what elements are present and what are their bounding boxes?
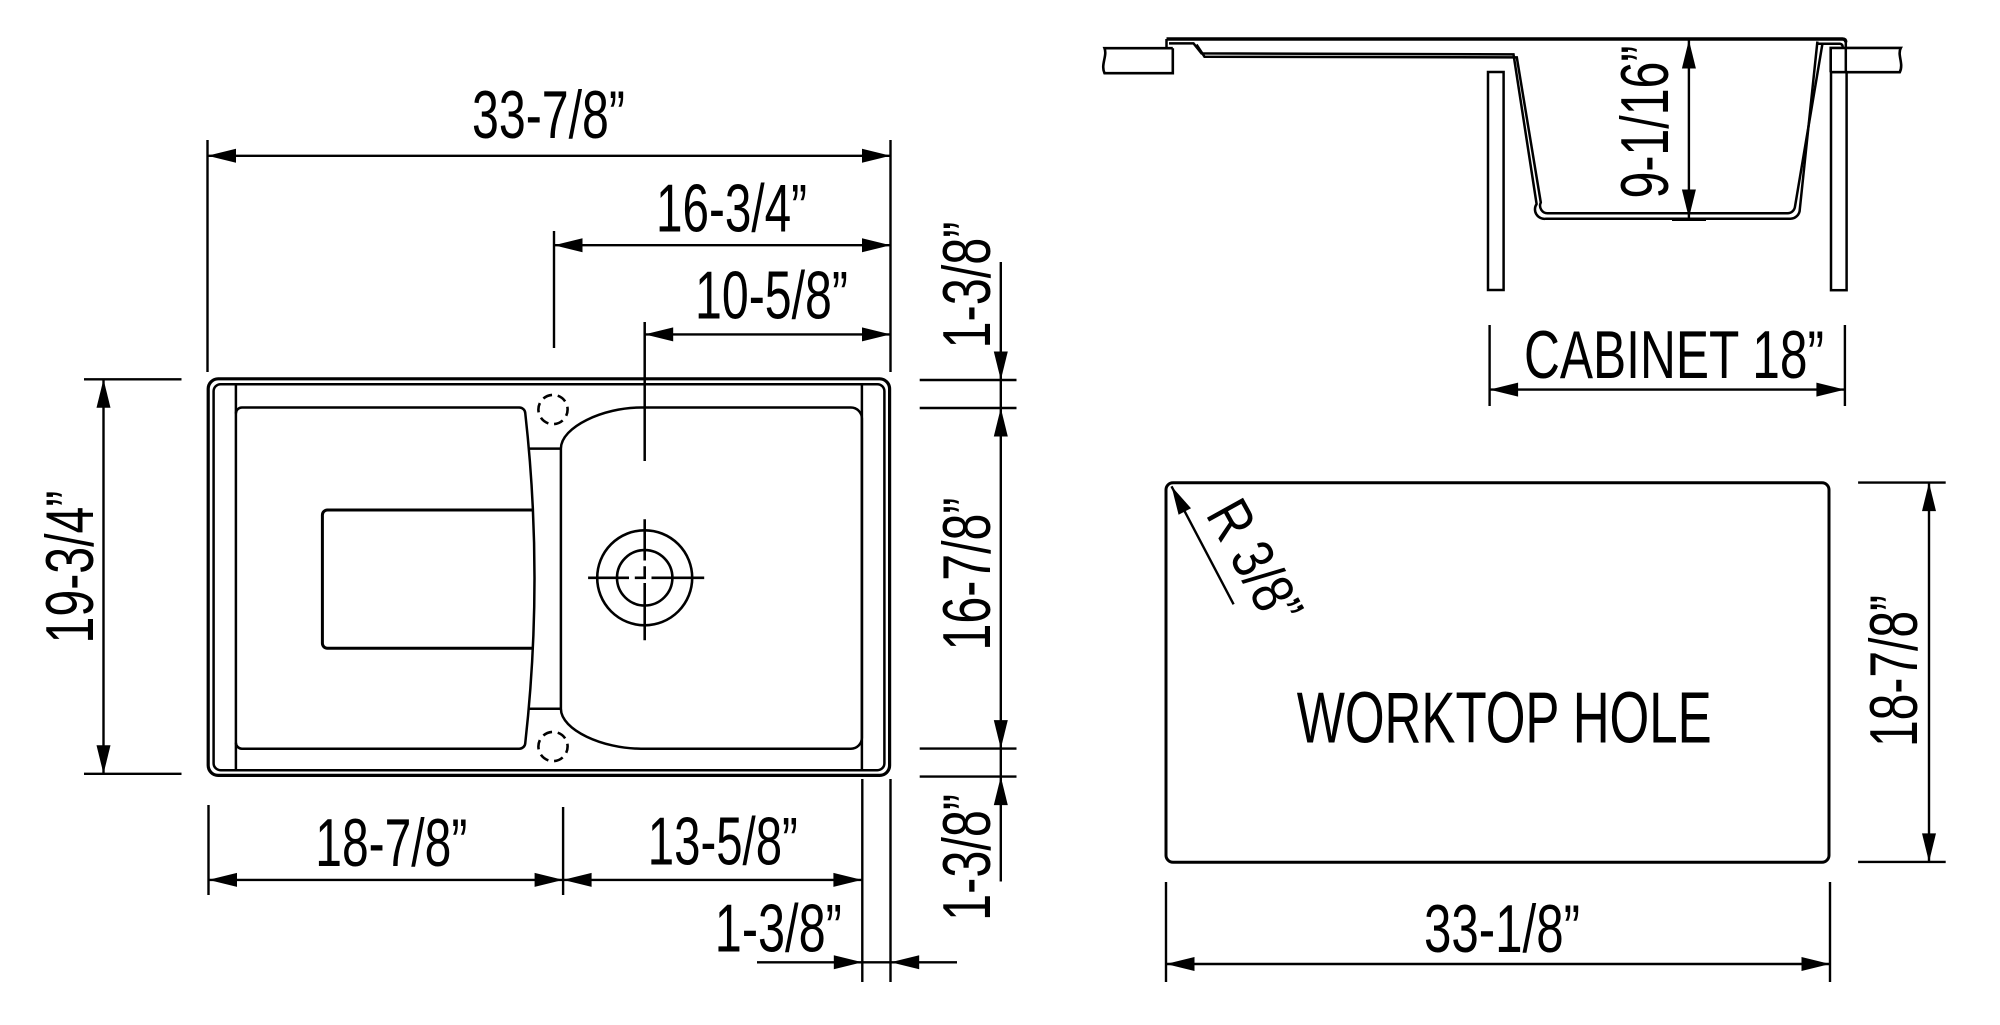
svg-text:18-7/8”: 18-7/8”	[1856, 595, 1932, 747]
svg-text:10-5/8”: 10-5/8”	[695, 258, 848, 334]
svg-text:16-3/4”: 16-3/4”	[656, 171, 807, 247]
svg-text:CABINET 18”: CABINET 18”	[1524, 317, 1824, 393]
svg-text:33-1/8”: 33-1/8”	[1424, 891, 1580, 967]
svg-text:1-3/8”: 1-3/8”	[929, 222, 1005, 349]
svg-text:9-1/16”: 9-1/16”	[1607, 46, 1683, 199]
svg-text:1-3/8”: 1-3/8”	[715, 891, 842, 967]
svg-text:19-3/4”: 19-3/4”	[32, 491, 108, 644]
svg-text:33-7/8”: 33-7/8”	[472, 77, 625, 153]
svg-text:1-3/8”: 1-3/8”	[929, 794, 1005, 921]
svg-text:18-7/8”: 18-7/8”	[315, 805, 467, 881]
svg-text:13-5/8”: 13-5/8”	[648, 804, 798, 880]
svg-text:WORKTOP HOLE: WORKTOP HOLE	[1297, 679, 1712, 759]
svg-text:16-7/8”: 16-7/8”	[929, 498, 1005, 651]
